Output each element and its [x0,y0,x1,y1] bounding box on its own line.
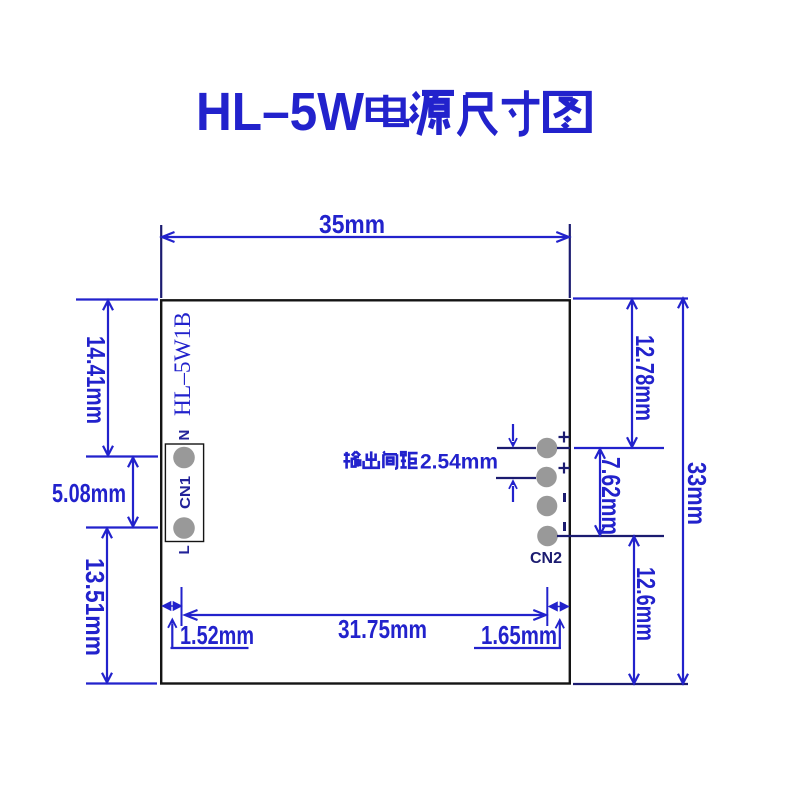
svg-text:5.08mm: 5.08mm [52,478,126,508]
svg-text:CN2: CN2 [530,550,562,567]
svg-text:1.65mm: 1.65mm [481,620,557,650]
svg-text:HL–5W: HL–5W [196,82,364,142]
svg-text:L: L [176,545,193,554]
svg-text:14.41mm: 14.41mm [81,336,111,424]
svg-text:7.62mm: 7.62mm [596,457,626,535]
svg-text:1.52mm: 1.52mm [180,620,254,650]
svg-text:31.75mm: 31.75mm [338,614,427,644]
svg-text:13.51mm: 13.51mm [80,558,110,656]
svg-text:CN1: CN1 [177,476,194,509]
svg-text:N: N [176,430,193,441]
svg-text:35mm: 35mm [319,209,385,239]
svg-text:33mm: 33mm [682,462,712,525]
svg-text:HL–5W1B: HL–5W1B [170,312,195,416]
svg-text:12.6mm: 12.6mm [631,567,661,641]
svg-text:12.78mm: 12.78mm [630,335,660,421]
svg-text:2.54mm: 2.54mm [420,451,498,474]
